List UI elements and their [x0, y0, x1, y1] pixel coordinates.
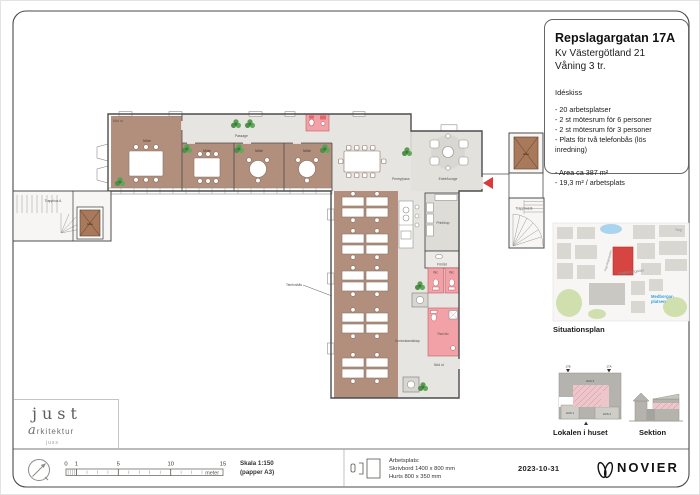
sektion-caption: Sektion: [639, 428, 666, 437]
scale-tick-1: 1: [75, 462, 78, 468]
architect-subtitle: arkitektur: [28, 423, 118, 438]
label-hiss-a: Hiss: [87, 222, 93, 226]
workplace-spec: Arbetsplats: Skrivbord 1400 x 800 mm Hur…: [389, 457, 455, 481]
sketch-type: Idéskiss: [555, 88, 678, 97]
zone-label-entre: Entré/lounge: [439, 177, 458, 181]
drawing-sheet: Möte Möte Möte Möte Passage Pentry/paus …: [0, 0, 700, 495]
lokalen-caption: Lokalen i huset: [553, 428, 608, 437]
workplace-title: Arbetsplats:: [389, 457, 455, 465]
room-label-printkop: Print/kop: [436, 221, 449, 225]
workplace-drawer: Hurts 800 x 350 mm: [389, 473, 455, 481]
novier-wordmark: NOVIER: [617, 460, 679, 475]
area-total: - Area ca 387 m²: [555, 168, 678, 178]
zone-label-pentry: Pentry/paus: [392, 177, 410, 181]
program-item: - 2 st mötesrum för 3 personer: [555, 125, 678, 135]
room-label-mote-d: Möte: [303, 149, 311, 153]
lokalen-hus2: HUS 2: [603, 412, 612, 416]
project-address: Repslagargatan 17A: [555, 31, 678, 45]
lokalen-hus3: HUS 3: [586, 379, 595, 383]
label-nod-ut-top: Nöd ut: [113, 119, 123, 123]
program-item: - Plats för två telefonbås (lös inrednin…: [555, 135, 678, 155]
room-label-wc2: Wc: [449, 271, 454, 275]
scale-meter-label: meter: [205, 471, 219, 477]
trapphus-a: [13, 191, 111, 241]
wc-top: [306, 114, 329, 131]
scale-line2: (papper A3): [240, 469, 274, 478]
label-trapphus-a: Trapphus A: [45, 199, 63, 203]
architect-logo: just arkitektur juss: [14, 399, 119, 448]
title-block: Repslagargatan 17A Kv Västergötland 21 V…: [544, 19, 689, 174]
scale-line1: Skala 1:150: [240, 460, 274, 469]
label-hiss-b: Hiss: [523, 152, 529, 156]
lokalen-diagram: HUS 3 HUS 1 HUS 2 17B 17A: [559, 365, 621, 426]
label-trapphus-b: Trapphus B: [516, 207, 534, 211]
architect-name: just: [32, 406, 118, 422]
label-nod-ut-bottom: Nöd ut: [434, 363, 444, 367]
room-label-mote-c: Möte: [255, 149, 263, 153]
map-metro-line2: platsen: [651, 299, 666, 304]
workplace-desk: Skrivbord 1400 x 800 mm: [389, 465, 455, 473]
room-label-wc1: Wc: [433, 271, 438, 275]
lokalen-entrance-a: 17A: [606, 365, 611, 369]
program-item: - 2 st mötesrum för 6 personer: [555, 115, 678, 125]
scale-text: Skala 1:150 (papper A3): [240, 460, 274, 477]
room-label-rwc: Rwc/du: [438, 332, 449, 336]
zone-label-kontorslandskap: Kontorslandskap: [395, 339, 420, 343]
architect-tagline: juss: [46, 440, 118, 446]
room-label-mote-a: Möte: [143, 139, 151, 143]
area-per-workplace: - 19,3 m² / arbetsplats: [555, 178, 678, 188]
situationsplan-caption: Situationsplan: [553, 325, 605, 334]
map-torg: Torg: [675, 228, 682, 232]
scale-tick-5: 5: [117, 462, 120, 468]
zone-label-passage: Passage: [235, 134, 248, 138]
project-floor: Våning 3 tr.: [555, 61, 678, 74]
situationsplan-map: Högbergsgatan Repslagargatan Medborgar- …: [553, 223, 689, 321]
scale-tick-0: 0: [64, 462, 67, 468]
lokalen-hus1: HUS 1: [566, 411, 575, 415]
scale-tick-10: 10: [167, 462, 173, 468]
program-item: - 20 arbetsplatser: [555, 105, 678, 115]
project-kvarter: Kv Västergötland 21: [555, 48, 678, 61]
label-telefonbas: Telefonbås: [286, 283, 302, 287]
lokalen-entrance-b: 17B: [565, 365, 570, 369]
room-label-forrad: Förråd: [437, 263, 447, 267]
room-label-mote-b: Möte: [203, 149, 211, 153]
scale-tick-15: 15: [220, 462, 226, 468]
drawing-date: 2023-10-31: [518, 464, 559, 473]
